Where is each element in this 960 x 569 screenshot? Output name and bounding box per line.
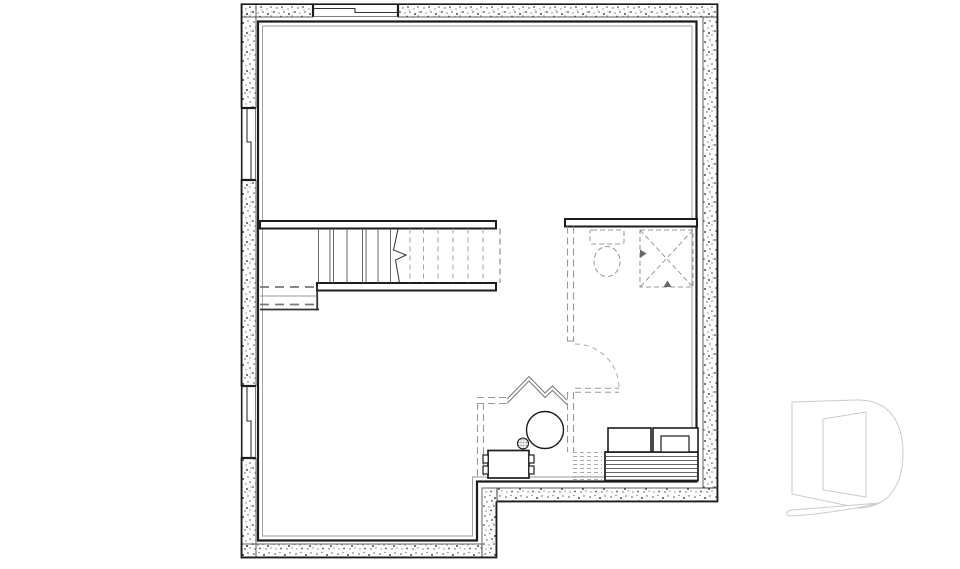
future-door-swing: [575, 344, 619, 388]
appliance-box-right-inner: [661, 436, 689, 452]
appliance-box-left: [608, 428, 651, 452]
stair-top-wall: [260, 221, 496, 229]
wall-left-lower: [241, 458, 256, 558]
window-left2-glazing: [247, 386, 251, 458]
stair-treads-solid: [319, 229, 391, 284]
floor-drain: [518, 438, 529, 449]
window-left1-glazing: [247, 108, 251, 180]
basement-floorplan-drawing: [0, 0, 960, 569]
d-logo-body: [792, 400, 903, 508]
wall-step: [482, 488, 497, 558]
floorplan-page: [0, 0, 960, 569]
wall-bottom-left: [241, 544, 482, 558]
wall-left-upper: [241, 4, 256, 108]
watermark-layer: [787, 400, 903, 516]
wall-bottom-right: [497, 488, 718, 502]
plan-elements-layer: [241, 4, 718, 558]
wall-left-middle: [241, 180, 256, 386]
shower-slope-arrow-bottom: [664, 281, 672, 288]
chair-left-1: [483, 455, 488, 463]
bathroom-front-wall: [565, 219, 697, 227]
window-top-glazing: [313, 9, 398, 13]
chair-left-2: [483, 466, 488, 474]
stair-treads-hidden: [410, 229, 483, 284]
shower-slope-arrow-left: [640, 250, 647, 259]
toilet-bowl: [594, 247, 620, 277]
bench-hidden-stripes: [573, 453, 602, 480]
chair-right-2: [529, 466, 534, 474]
toilet-tank: [590, 230, 624, 244]
d-logo-swoosh: [787, 503, 880, 516]
stair-bottom-wall: [317, 283, 496, 291]
table: [488, 451, 529, 479]
wall-top-right-of-window: [398, 4, 718, 17]
wall-right: [703, 17, 718, 488]
chair-right-1: [529, 455, 534, 463]
water-heater: [527, 412, 564, 449]
stair-break-line: [394, 229, 407, 283]
